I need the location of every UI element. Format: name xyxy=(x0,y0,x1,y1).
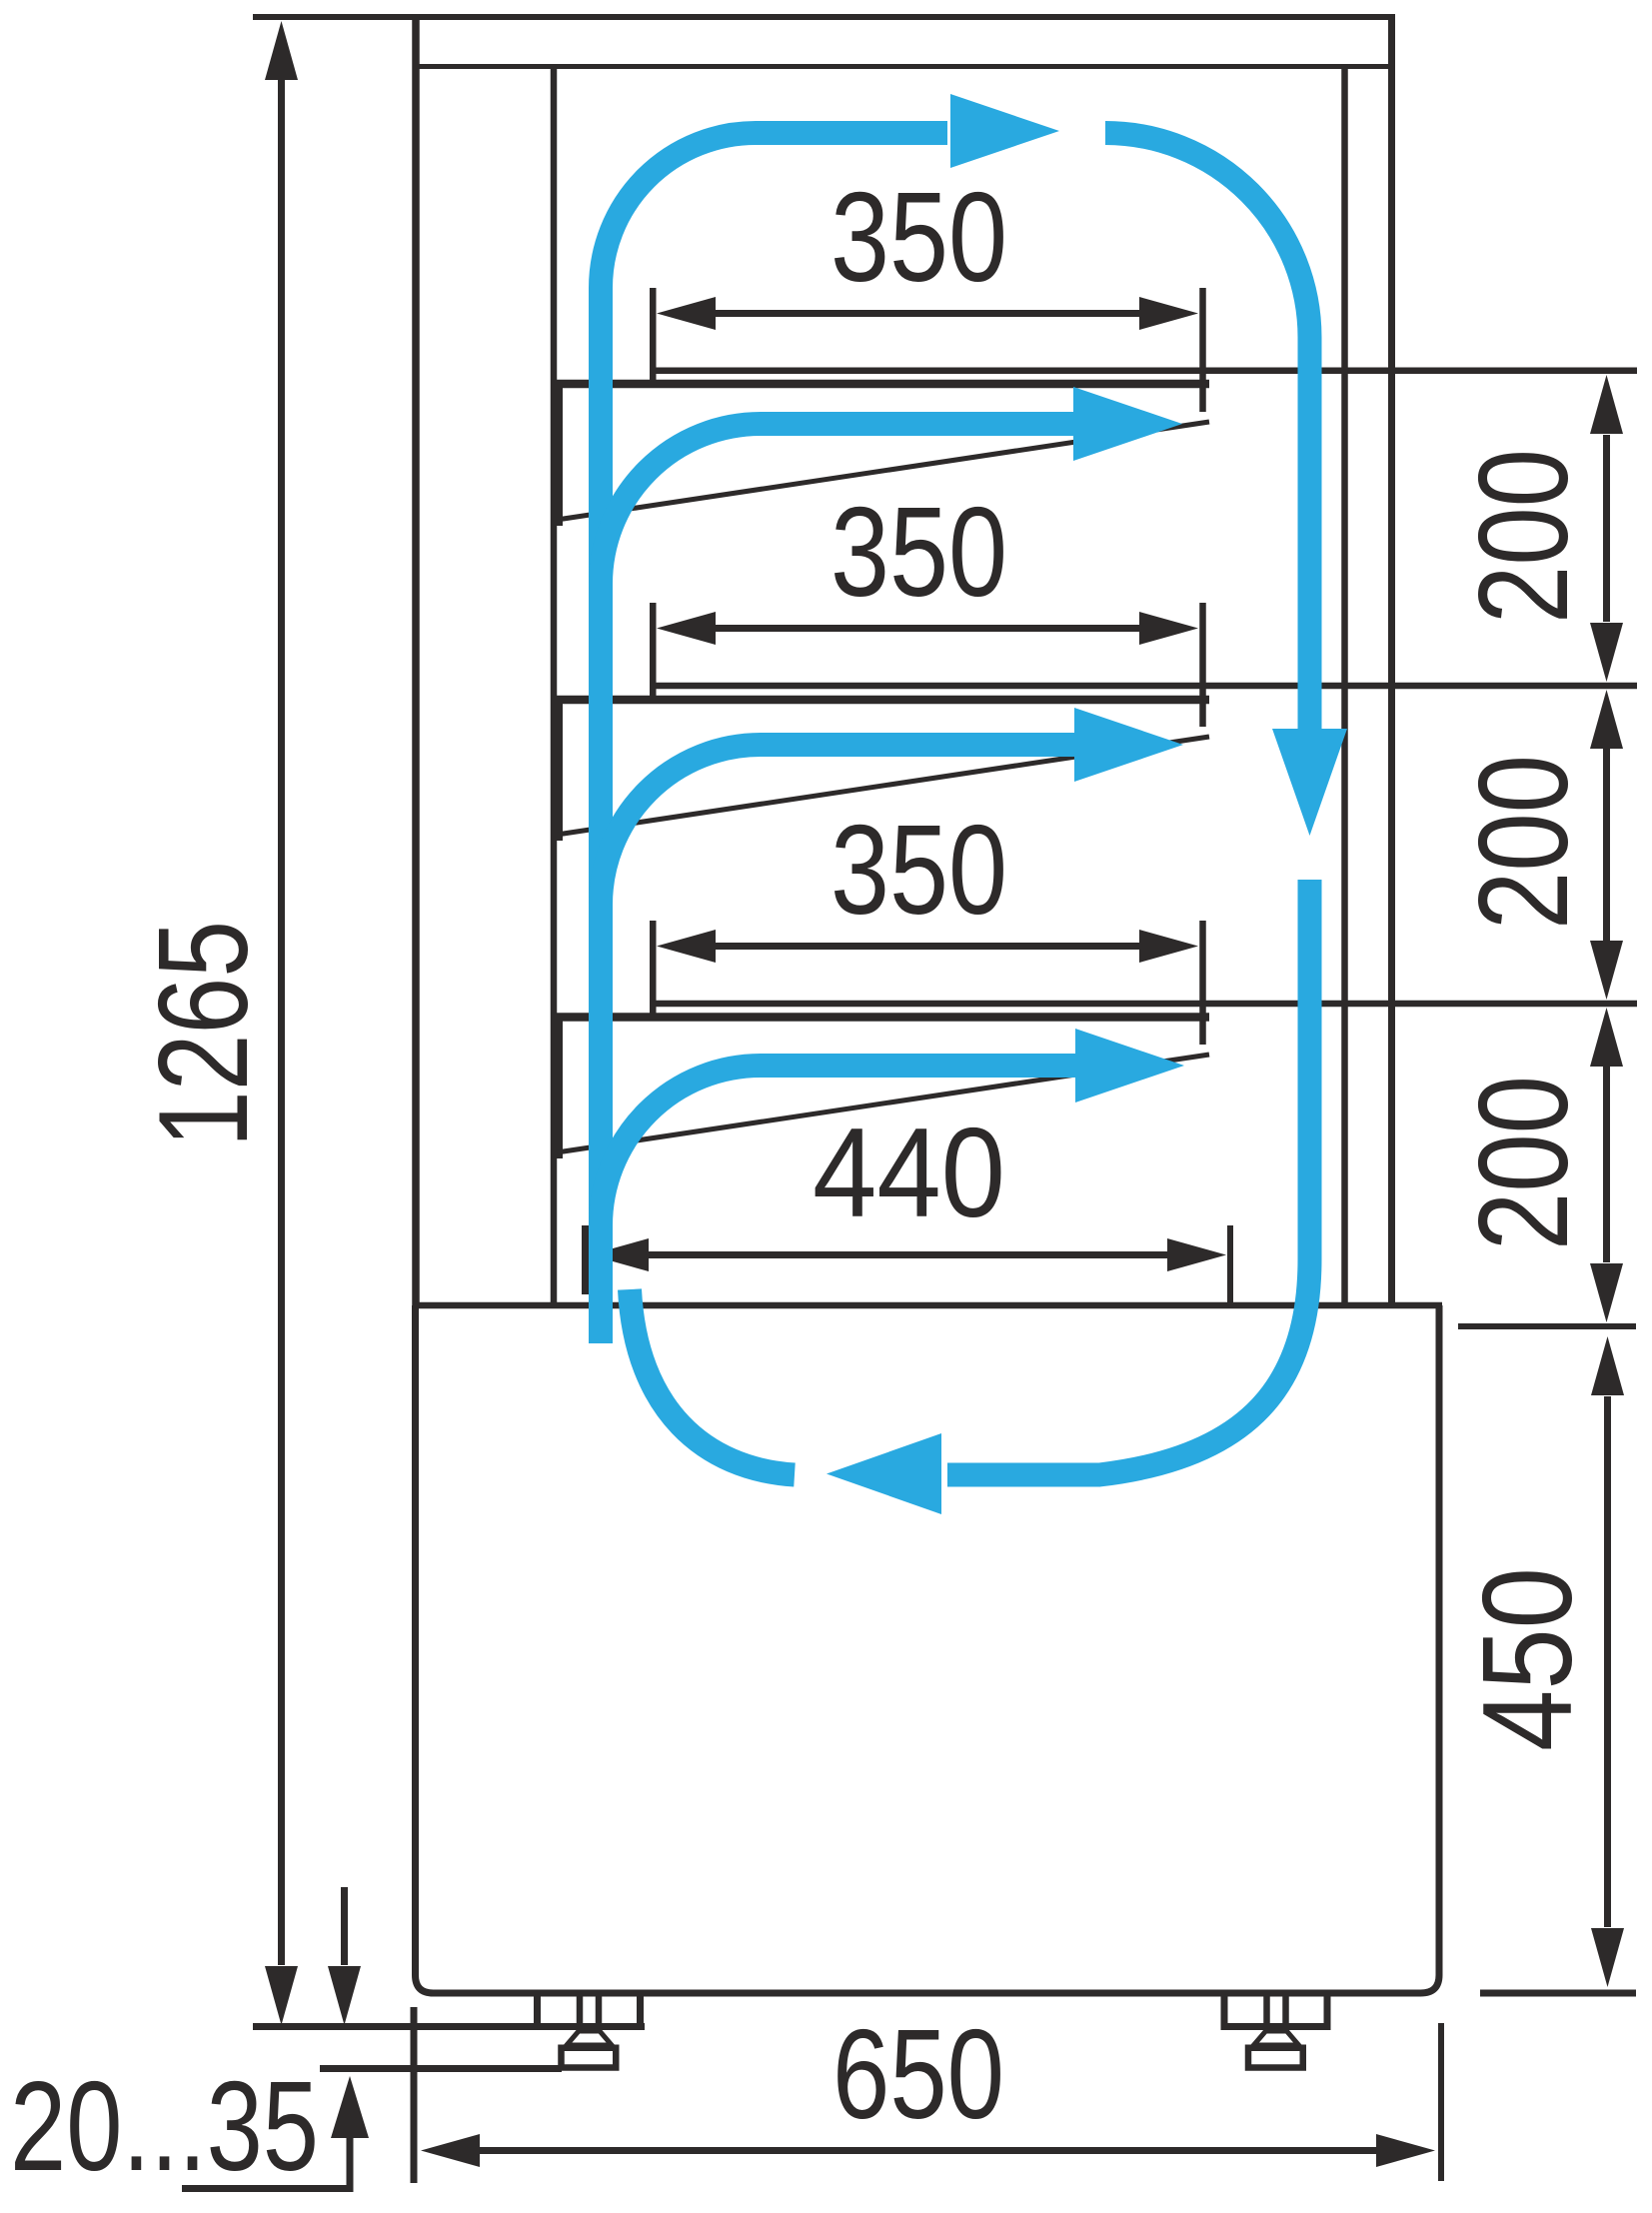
svg-text:450: 450 xyxy=(1456,1567,1598,1751)
svg-text:200: 200 xyxy=(1452,755,1594,930)
svg-text:200: 200 xyxy=(1452,449,1594,624)
svg-text:350: 350 xyxy=(830,481,1007,623)
svg-text:650: 650 xyxy=(832,2003,1004,2145)
svg-text:20...35: 20...35 xyxy=(10,2055,319,2197)
svg-text:440: 440 xyxy=(813,1102,1005,1243)
svg-text:350: 350 xyxy=(830,166,1007,308)
svg-text:1265: 1265 xyxy=(132,921,274,1147)
svg-text:200: 200 xyxy=(1452,1076,1594,1250)
svg-text:350: 350 xyxy=(830,799,1007,941)
